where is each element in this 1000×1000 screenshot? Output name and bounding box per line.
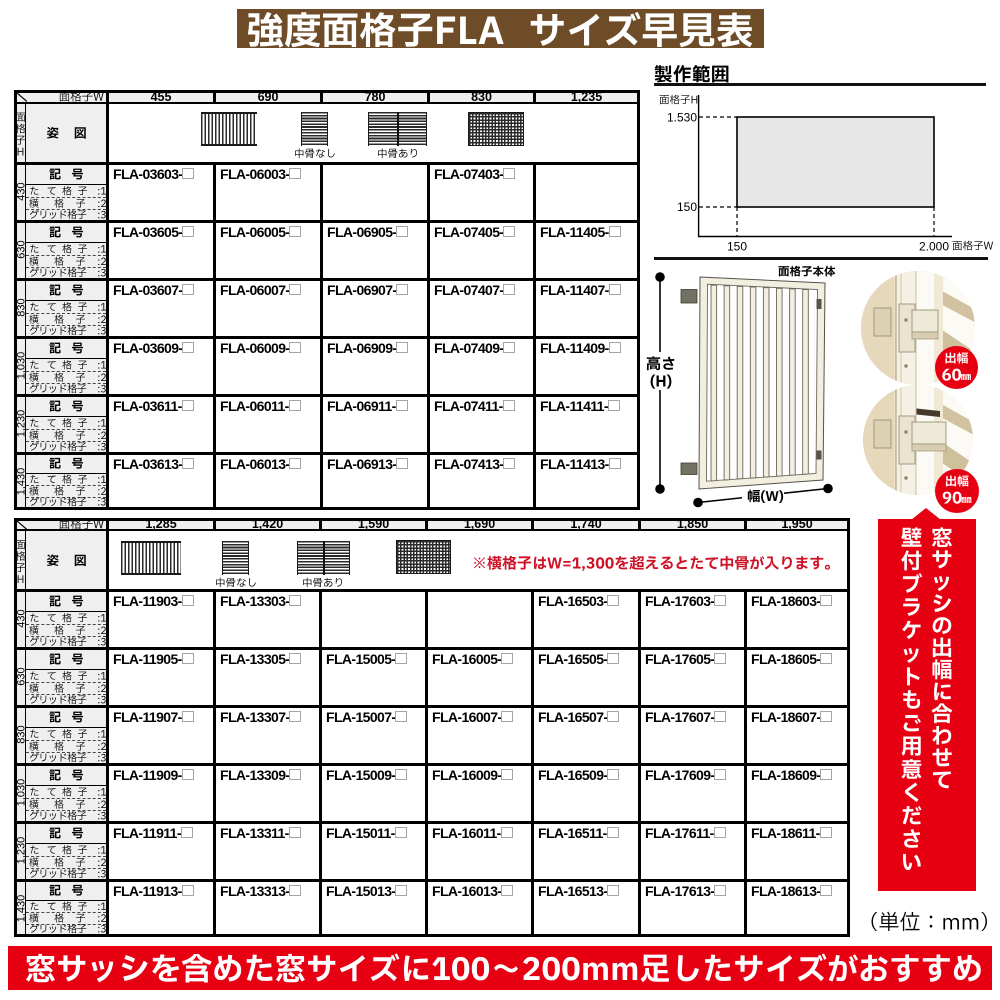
svg-text:1.530: 1.530: [667, 111, 697, 125]
svg-text:2.000: 2.000: [919, 240, 949, 254]
svg-text:150: 150: [677, 200, 697, 214]
svg-text:150: 150: [727, 240, 747, 254]
